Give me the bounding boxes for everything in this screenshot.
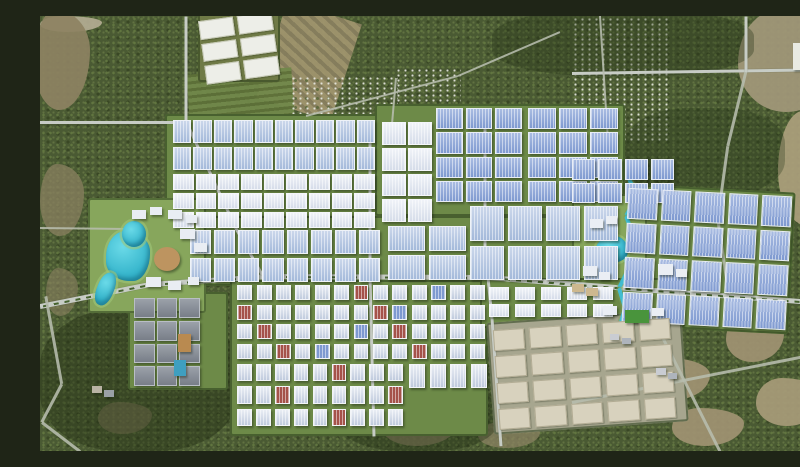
graded-pad [567,349,600,372]
farm-building [92,386,102,393]
warehouse-building [255,147,273,170]
warehouse-cluster-top-center-a [436,108,520,200]
warehouse-building [275,386,290,403]
warehouse-building [470,285,485,300]
warehouse-building [309,193,330,209]
warehouse-building [625,159,648,180]
resort-building [150,207,162,215]
warehouse-building [408,174,432,197]
warehouse-building [313,409,328,426]
warehouse-building [295,120,313,143]
warehouse-building [238,230,259,254]
warehouse-building [193,147,211,170]
warehouse-building [598,183,621,204]
forest-shadow [492,16,754,76]
warehouse-building [311,230,332,254]
warehouse-building [294,364,309,381]
warehouse-building [196,174,217,190]
warehouse-building [214,147,232,170]
warehouse-cluster-center-mid [388,226,464,278]
warehouse-building [234,120,252,143]
warehouse-building [369,386,384,403]
resort-building [168,281,181,290]
warehouse-building [436,157,463,178]
warehouse-building [373,305,388,320]
warehouse-building [332,386,347,403]
warehouse-building [257,305,272,320]
warehouse-building [528,132,556,153]
warehouse-building [313,364,328,381]
warehouse-building [196,212,217,228]
warehouse-building [373,344,388,359]
warehouse-building [286,193,307,209]
warehouse-building [357,147,375,170]
road [185,16,188,123]
warehouse-building [237,409,252,426]
warehouse-building [408,148,432,171]
warehouse-building [256,409,271,426]
warehouse-building [470,344,485,359]
warehouse-building [408,122,432,145]
warehouse-building [431,285,446,300]
warehouse-building [238,258,259,282]
warehouse-building [287,230,308,254]
warehouse-building [430,364,446,388]
warehouse-building [134,344,155,364]
warehouse-building [332,174,353,190]
warehouse-building [275,364,290,381]
graded-pad [493,328,526,351]
warehouse-building [388,386,403,403]
graded-pad [240,33,277,56]
graded-pad [535,404,568,427]
graded-pad [237,16,274,34]
warehouse-building [431,324,446,339]
warehouse-building [559,132,587,153]
farm-building [656,368,666,375]
graded-pad [565,323,598,346]
warehouse-building [508,246,542,281]
warehouse-building [590,108,618,129]
warehouse-building [295,285,310,300]
warehouse-building [237,386,252,403]
graded-pad [571,402,604,425]
warehouse-building [382,122,406,145]
campus-accent-building [178,334,191,352]
warehouse-building [332,212,353,228]
warehouse-building [157,298,178,318]
warehouse-building [572,159,595,180]
warehouse-building [450,324,465,339]
warehouse-building [659,224,690,256]
graded-pad [533,378,566,401]
warehouse-building [689,295,720,327]
warehouse-building [313,386,328,403]
warehouse-building [623,257,654,289]
warehouse-building [357,120,375,143]
warehouse-building [157,321,178,341]
office-building [658,264,673,275]
graded-pad [569,375,602,398]
graded-pad [531,352,564,375]
farm-building [622,338,631,344]
graded-pad [496,380,529,403]
warehouse-building [692,226,723,258]
warehouse-cluster-upper-left-b [173,174,373,226]
warehouse-building [489,304,509,317]
warehouse-building [528,157,556,178]
graded-pad [607,399,640,422]
warehouse-building [334,324,349,339]
warehouse-building [257,344,272,359]
warehouse-building [541,304,561,317]
warehouse-building [218,212,239,228]
road [40,121,187,124]
warehouse-building [392,344,407,359]
warehouse-building [354,174,375,190]
farm-building [668,373,677,379]
small-lot-factory-grid-east [408,362,486,388]
warehouse-cluster-center-small [382,122,430,220]
masterplan-render-layer [40,16,800,451]
office-building [590,219,603,228]
warehouse-building [241,193,262,209]
warehouse-building [408,199,432,222]
warehouse-building [761,195,792,227]
graded-pads-grid [493,318,674,428]
warehouse-building [373,285,388,300]
warehouse-building [495,108,522,129]
graded-pad [495,354,528,377]
warehouse-building [431,344,446,359]
warehouse-building [528,181,556,202]
graded-pad [644,396,677,419]
warehouse-building [309,212,330,228]
warehouse-building [276,285,291,300]
warehouse-building [694,191,725,223]
warehouse-building [336,120,354,143]
campus-pool [174,360,186,376]
tan-lowrise-building [572,284,584,292]
warehouse-building [382,148,406,171]
warehouse-building [559,108,587,129]
small-lot-factory-grid-lower [236,362,402,426]
warehouse-building [237,305,252,320]
industrial-park-masterplan-aerial [40,16,800,451]
warehouse-building [262,230,283,254]
warehouse-building [332,409,347,426]
warehouse-building [275,120,293,143]
office-building [599,272,610,280]
warehouse-building [495,157,522,178]
graded-pad [201,39,238,62]
warehouse-building [241,212,262,228]
farm-building [104,390,114,397]
warehouse-building [262,258,283,282]
warehouse-building [256,386,271,403]
warehouse-building [264,193,285,209]
warehouse-building [179,298,200,318]
warehouse-building [470,305,485,320]
warehouse-cluster-east-main [622,188,791,328]
warehouse-building [388,255,425,280]
warehouse-building [354,324,369,339]
warehouse-building [450,364,466,388]
warehouse-building [354,344,369,359]
warehouse-building [541,287,561,300]
warehouse-building [332,193,353,209]
warehouse-building [264,212,285,228]
warehouse-building [436,108,463,129]
warehouse-building [315,344,330,359]
warehouse-building [470,206,504,241]
warehouse-building [466,181,493,202]
warehouse-building [373,324,388,339]
warehouse-building [286,212,307,228]
warehouse-building [572,183,595,204]
warehouse-building [196,193,217,209]
warehouse-building [350,364,365,381]
office-building [583,266,597,276]
warehouse-building [450,305,465,320]
warehouse-building [257,285,272,300]
warehouse-cluster-mid-left [190,230,378,280]
warehouse-building [450,285,465,300]
warehouse-building [173,174,194,190]
warehouse-building [409,364,425,388]
warehouse-building [412,305,427,320]
warehouse-building [436,132,463,153]
warehouse-building [309,174,330,190]
warehouse-building [294,386,309,403]
warehouse-building [350,409,365,426]
warehouse-building [388,226,425,251]
warehouse-building [173,193,194,209]
warehouse-building [388,364,403,381]
warehouse-building [295,305,310,320]
warehouse-building [354,285,369,300]
graded-pad [604,347,637,370]
warehouse-building [294,409,309,426]
tan-clearing [756,378,800,426]
warehouse-building [286,174,307,190]
graded-pad [498,407,531,430]
warehouse-building [311,258,332,282]
warehouse-building [495,132,522,153]
warehouse-building [218,193,239,209]
warehouse-building [335,258,356,282]
resort-building [186,215,197,223]
warehouse-building [350,386,365,403]
graded-pad [640,344,673,367]
warehouse-building [275,409,290,426]
warehouse-building [388,409,403,426]
office-building [603,306,617,315]
warehouse-building [598,159,621,180]
resort-building [146,277,161,287]
warehouse-building [276,344,291,359]
warehouse-building [257,324,272,339]
warehouse-building [276,324,291,339]
warehouse-building [354,193,375,209]
resort-building [168,210,182,219]
warehouse-building [429,255,466,280]
warehouse-building [470,324,485,339]
warehouse-building [495,181,522,202]
warehouse-building [508,206,542,241]
warehouse-building [728,193,759,225]
warehouse-building [758,264,789,296]
warehouse-building [315,324,330,339]
resort-building [194,243,207,252]
warehouse-building [295,147,313,170]
warehouse-building [315,305,330,320]
warehouse-building [334,305,349,320]
warehouse-building [369,409,384,426]
warehouse-building [354,305,369,320]
graded-pad [605,373,638,396]
warehouse-building [275,147,293,170]
west-lake-upper [122,221,146,247]
warehouse-building [193,120,211,143]
resort-building [180,229,195,239]
warehouse-building [295,344,310,359]
brown-clearing [40,16,90,110]
warehouse-building [134,298,155,318]
road [745,16,748,72]
warehouse-building [466,132,493,153]
warehouse-building [315,285,330,300]
warehouse-building [173,120,191,143]
brown-clearing [40,164,84,236]
warehouse-building [218,174,239,190]
warehouse-building [515,287,535,300]
warehouse-building [256,364,271,381]
warehouse-building [255,120,273,143]
farm-building [610,334,619,340]
warehouse-building [651,159,674,180]
tan-lowrise-building [586,288,598,296]
warehouse-building [354,212,375,228]
warehouse-cluster-upper-left-a [173,120,373,168]
warehouse-building [237,285,252,300]
warehouse-building [625,222,656,254]
warehouse-building [316,147,334,170]
warehouse-building [429,226,466,251]
graded-pad [198,16,235,39]
warehouse-building [234,147,252,170]
warehouse-building [237,344,252,359]
warehouse-building [515,304,535,317]
warehouse-building [489,287,509,300]
warehouse-building [276,305,291,320]
warehouse-building [237,364,252,381]
graded-pad [529,325,562,348]
warehouse-building [627,188,658,220]
graded-pad [793,43,800,70]
north-graded-pads [198,16,278,83]
office-building [676,269,687,277]
warehouse-building [436,181,463,202]
warehouse-building [759,229,790,261]
warehouse-building [726,228,757,260]
warehouse-building [471,364,487,388]
warehouse-building [359,258,380,282]
warehouse-building [134,321,155,341]
warehouse-building [335,230,356,254]
warehouse-building [392,305,407,320]
warehouse-building [470,246,504,281]
warehouse-building [392,285,407,300]
warehouse-building [264,174,285,190]
warehouse-building [661,190,692,222]
warehouse-building [546,246,580,281]
warehouse-building [382,199,406,222]
warehouse-building [334,344,349,359]
warehouse-building [590,132,618,153]
small-lot-factory-grid-upper [236,284,484,358]
sports-field [625,310,649,323]
warehouse-building [690,260,721,292]
circular-plaza-building [154,247,180,271]
warehouse-building [173,147,191,170]
warehouse-building [450,344,465,359]
warehouse-building [214,258,235,282]
warehouse-building [382,174,406,197]
warehouse-building [466,157,493,178]
brown-clearing [46,268,78,316]
warehouse-building [134,366,155,386]
warehouse-building [287,258,308,282]
warehouse-building [316,120,334,143]
office-building [652,308,664,316]
warehouse-building [412,285,427,300]
warehouse-building [528,108,556,129]
warehouse-building [359,230,380,254]
warehouse-building [756,298,787,330]
warehouse-building [431,305,446,320]
warehouse-building [567,304,587,317]
warehouse-building [546,206,580,241]
warehouse-building [332,364,347,381]
warehouse-building [412,344,427,359]
warehouse-building [466,108,493,129]
office-building [606,216,617,224]
resort-building [132,210,146,219]
warehouse-building [722,296,753,328]
warehouse-building [369,364,384,381]
warehouse-building [214,230,235,254]
warehouse-building [334,285,349,300]
warehouse-building [295,324,310,339]
warehouse-building [724,262,755,294]
warehouse-building [241,174,262,190]
warehouse-building [214,120,232,143]
warehouse-building [336,147,354,170]
warehouse-building [412,324,427,339]
resort-building [188,277,199,285]
warehouse-building [237,324,252,339]
warehouse-building [392,324,407,339]
